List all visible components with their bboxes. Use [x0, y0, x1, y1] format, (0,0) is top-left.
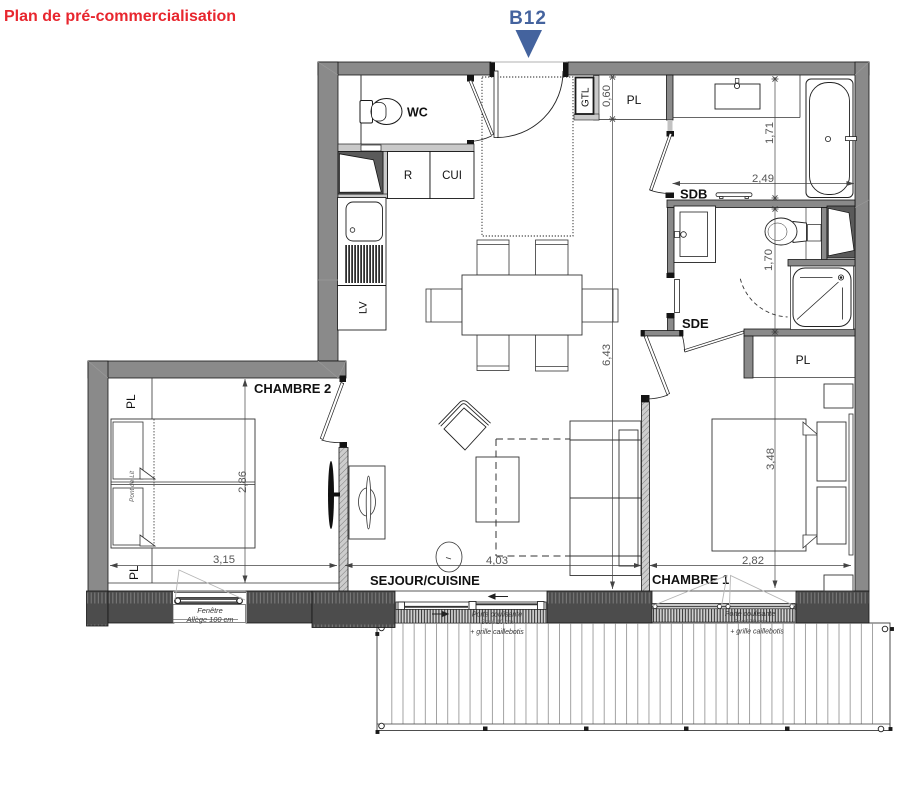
svg-text:GTL: GTL: [581, 87, 592, 107]
svg-text:0,60: 0,60: [601, 85, 613, 107]
svg-text:Pont de Lit: Pont de Lit: [129, 470, 136, 502]
svg-text:2,86: 2,86: [237, 471, 249, 493]
svg-text:+ grille caillebotis: + grille caillebotis: [730, 629, 784, 636]
svg-text:B12: B12: [509, 8, 547, 29]
svg-text:2,49: 2,49: [752, 173, 774, 185]
svg-text:CHAMBRE 2: CHAMBRE 2: [254, 381, 331, 396]
svg-text:R: R: [404, 170, 412, 182]
svg-text:Porte coulisante: Porte coulisante: [472, 612, 522, 619]
svg-text:1,70: 1,70: [763, 249, 775, 271]
svg-text:2,82: 2,82: [742, 555, 764, 567]
svg-text:Fenêtre: Fenêtre: [197, 606, 222, 615]
svg-text:PL: PL: [796, 353, 811, 367]
svg-text:Seuil 10 cm: Seuil 10 cm: [481, 619, 513, 626]
svg-text:CUI: CUI: [442, 170, 462, 182]
svg-text:LV: LV: [358, 301, 370, 314]
svg-text:WC: WC: [407, 106, 428, 120]
svg-text:6,43: 6,43: [601, 344, 613, 366]
svg-text:Allège 100 cm: Allège 100 cm: [186, 615, 234, 624]
svg-text:PL: PL: [127, 565, 141, 580]
svg-text:SEJOUR/CUISINE: SEJOUR/CUISINE: [370, 573, 480, 588]
svg-text:1,71: 1,71: [764, 122, 776, 144]
svg-text:PL: PL: [627, 93, 642, 107]
svg-text:3,48: 3,48: [765, 448, 777, 470]
svg-text:3,15: 3,15: [213, 554, 235, 566]
svg-text:Porte coulisante: Porte coulisante: [725, 611, 775, 618]
svg-text:SDE: SDE: [682, 316, 709, 331]
svg-text:SDB: SDB: [680, 187, 707, 202]
svg-text:Plan de pré-commercialisation: Plan de pré-commercialisation: [4, 8, 236, 25]
svg-text:PL: PL: [124, 394, 138, 409]
svg-text:+ grille caillebotis: + grille caillebotis: [470, 629, 524, 636]
svg-text:Seuil 10 cm: Seuil 10 cm: [734, 619, 766, 626]
svg-text:4,03: 4,03: [486, 555, 508, 567]
